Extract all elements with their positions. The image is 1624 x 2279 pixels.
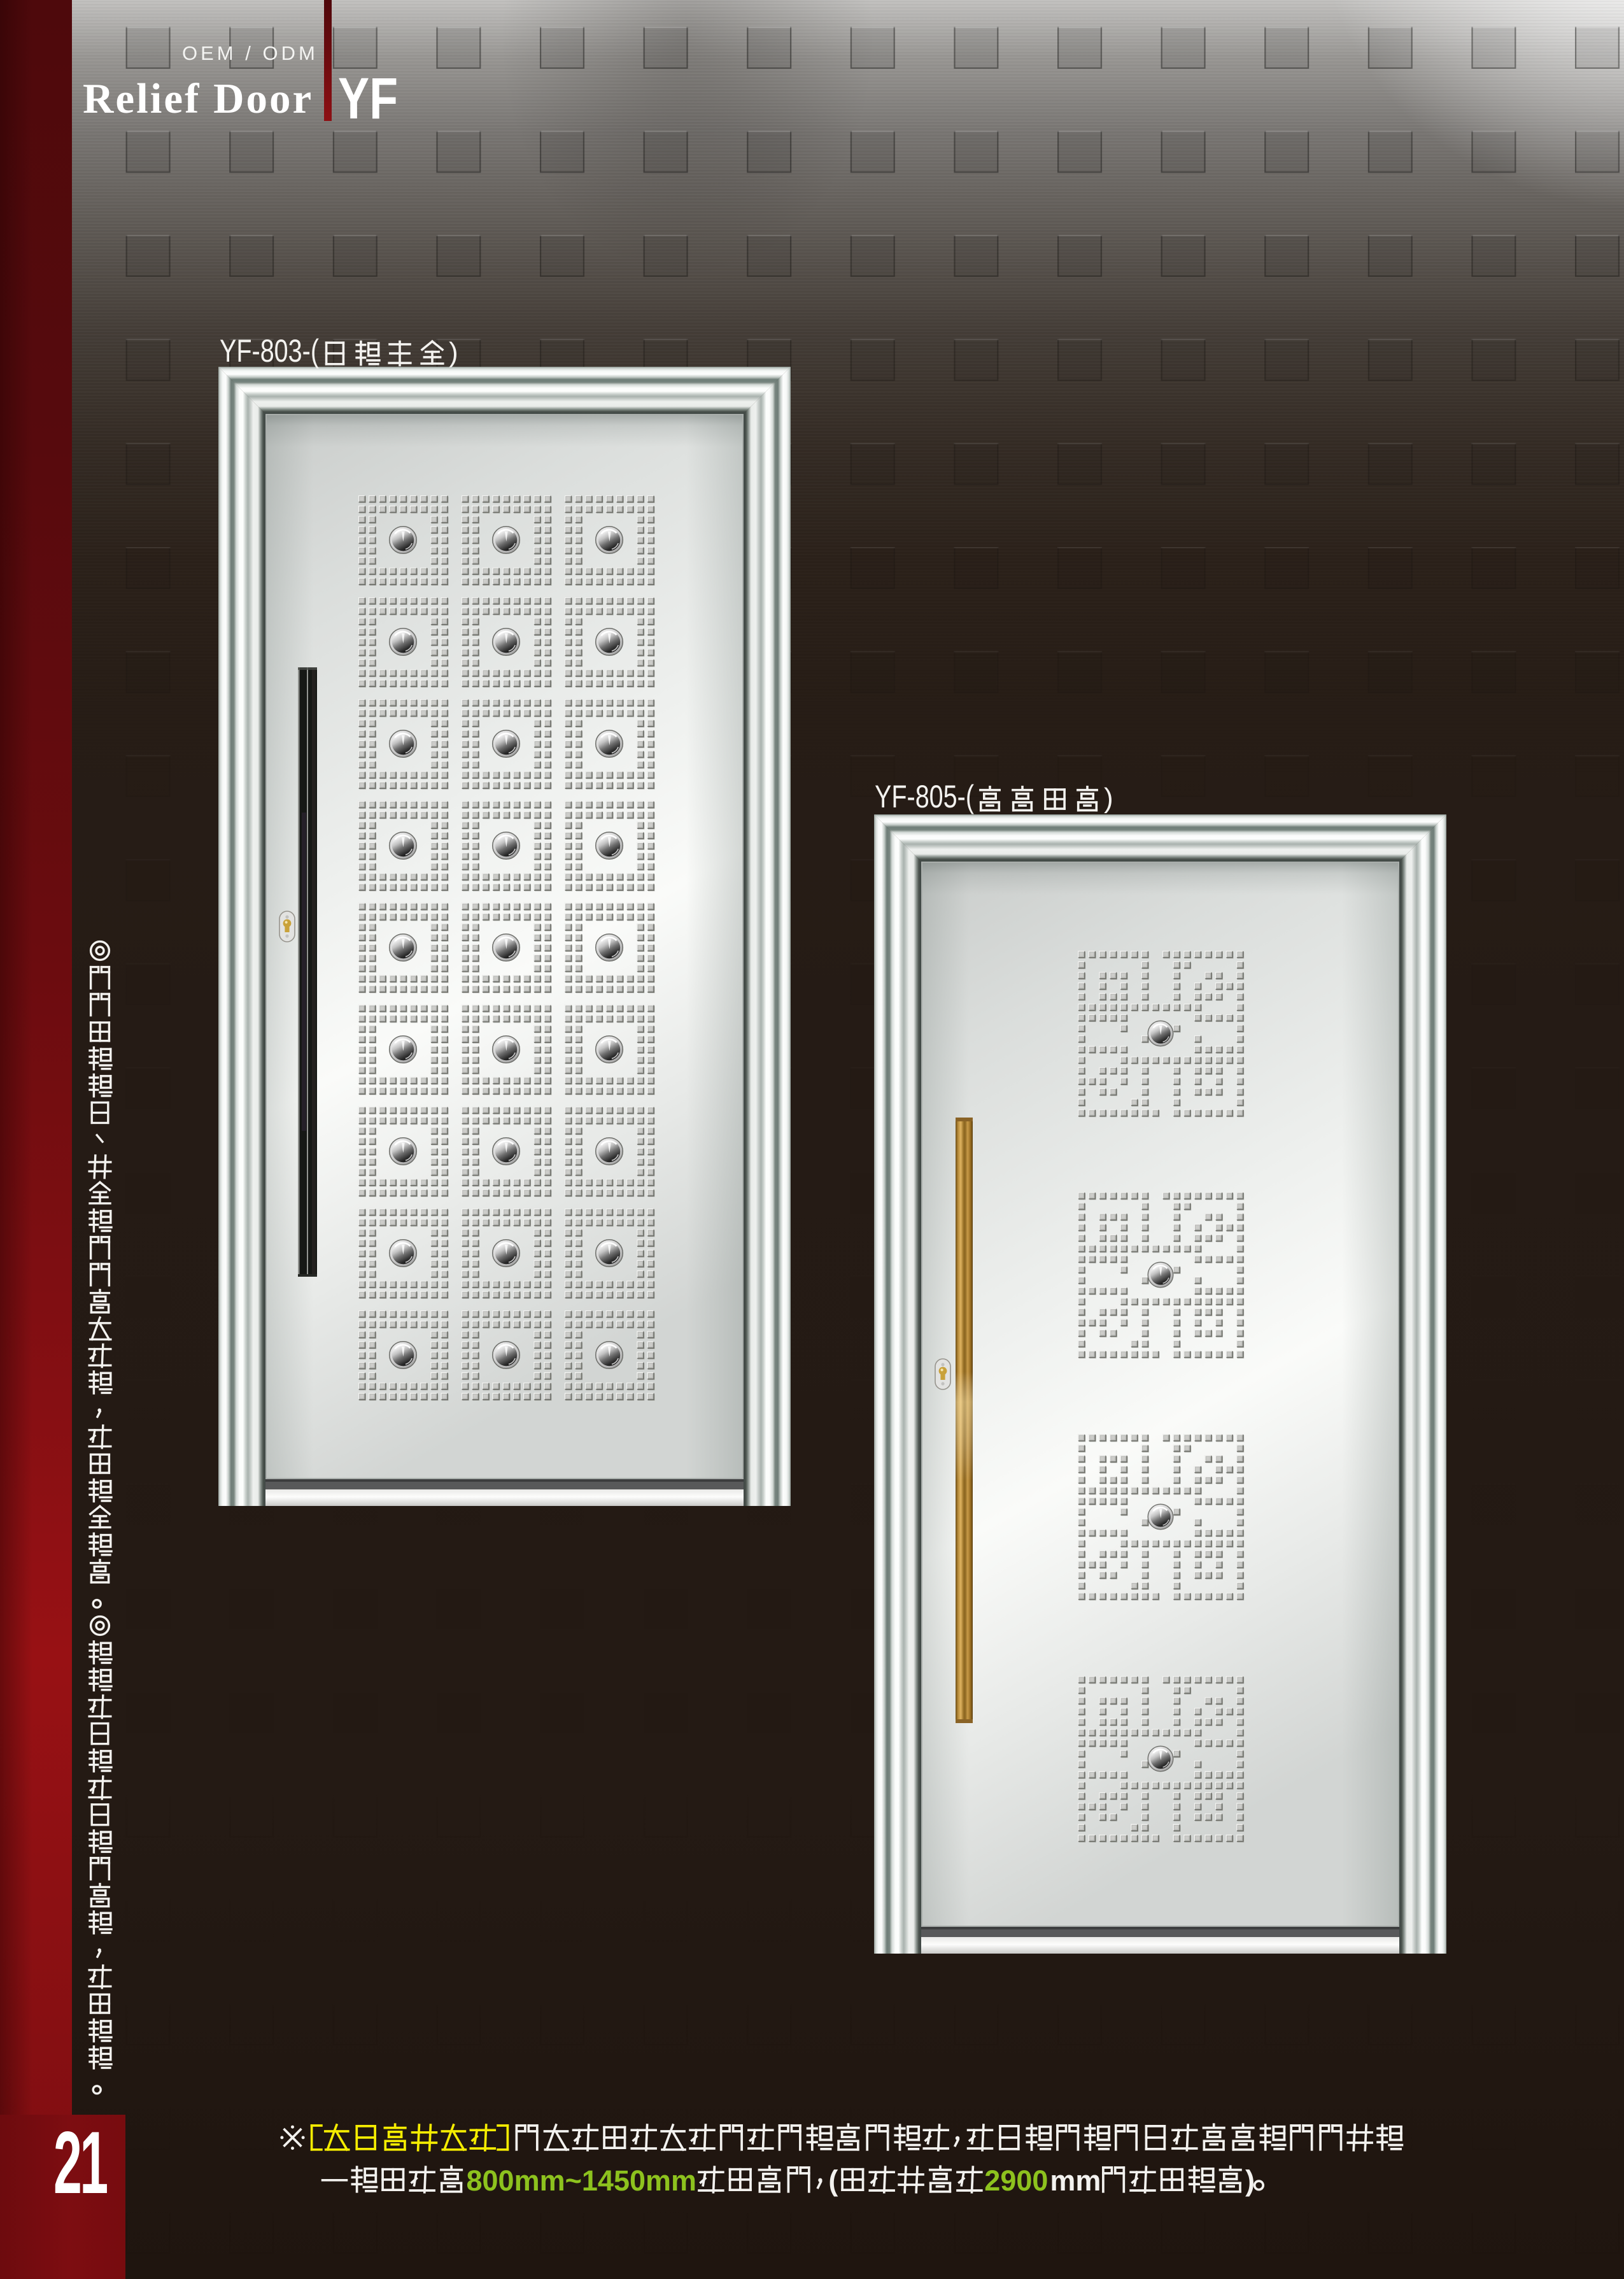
svg-text:2900: 2900 (984, 2164, 1048, 2197)
svg-text:): ) (1245, 2164, 1255, 2197)
svg-text:mm: mm (1050, 2164, 1101, 2197)
svg-text:800mm~1450mm: 800mm~1450mm (467, 2164, 697, 2197)
svg-text:(: ( (828, 2164, 838, 2197)
